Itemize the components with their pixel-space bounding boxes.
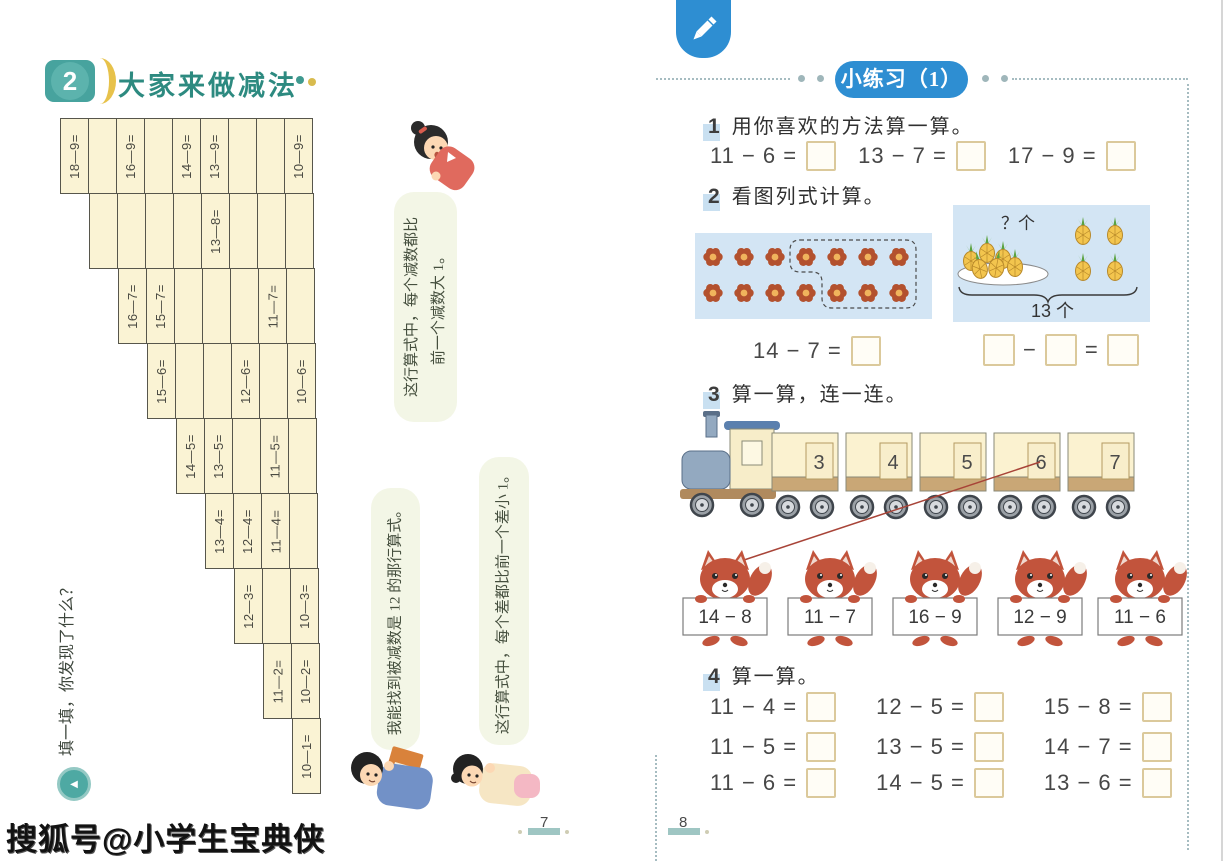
train-car-5: 7 <box>1068 433 1134 518</box>
grid-cell-label: 12—6= <box>238 359 253 404</box>
grid-row-minus4: 13—4= 12—4= 11—4= <box>205 493 318 569</box>
answer-box <box>1142 692 1172 722</box>
expression: 11 − 6 = <box>710 770 797 796</box>
flower-picture <box>695 233 932 319</box>
lesson-number-badge: 2 <box>45 60 95 102</box>
expression: 14 − 7 = <box>753 338 842 364</box>
grid-cell-label: 11—2= <box>270 659 285 703</box>
character-boy-bottom <box>343 746 453 818</box>
grid-cell-label: 13—4= <box>212 509 227 554</box>
grid-cell: 11—7= <box>258 268 287 344</box>
grid-cell <box>117 193 146 269</box>
grid-cell <box>173 193 202 269</box>
problem-1-row: 11 − 6 = 13 − 7 = 17 − 9 = <box>710 141 1136 171</box>
expression: 14 − 7 = <box>1044 734 1133 760</box>
grid-cell-label: 11—4= <box>268 509 283 553</box>
grid-cell <box>175 343 204 419</box>
expression-item: 13 − 6 = <box>1044 768 1172 798</box>
expression: 13 − 6 = <box>1044 770 1133 796</box>
grid-row-minus3: 12—3= 10—3= <box>234 568 319 644</box>
expression-item: 11 − 4 = <box>710 692 836 722</box>
grid-cell-label: 10—2= <box>298 659 313 704</box>
grid-cell <box>289 493 318 569</box>
train-car-number: 5 <box>961 452 972 474</box>
expression: 17 − 9 = <box>1008 143 1097 169</box>
accent-dot <box>308 78 316 86</box>
train-illustration: 3 4 5 6 7 <box>680 403 1150 521</box>
grid-cell: 13—5= <box>204 418 233 494</box>
grid-cell <box>145 193 174 269</box>
right-frame-dotted-line <box>1187 84 1189 850</box>
grid-cell <box>259 343 288 419</box>
footer-dot <box>705 830 709 834</box>
grid-cell: 18—9= <box>60 118 89 194</box>
grid-row-minus7: 16—7= 15—7= 11—7= <box>118 268 315 344</box>
side-prompt: 填一填，你发现了什么？ <box>53 562 77 774</box>
grid-cell: 14—5= <box>176 418 205 494</box>
header-dot <box>798 75 805 82</box>
grid-cell <box>229 193 258 269</box>
grid-cell: 16—9= <box>116 118 145 194</box>
grid-cell-label: 14—9= <box>179 134 194 179</box>
speech-bubble-boy-text: 我能找到被减数是 12 的那行算式。 <box>382 493 409 745</box>
squirrel-card-4: 12 − 9 <box>990 548 1090 648</box>
grid-cell: 12—6= <box>231 343 260 419</box>
lesson-badge-crescent <box>93 58 116 104</box>
bubble-line: 这行算式中，每个减数都比 <box>399 198 426 416</box>
bubble-line: 前一个减数大 1。 <box>426 198 453 416</box>
answer-box <box>974 732 1004 762</box>
answer-box <box>806 141 836 171</box>
card-expression: 14 − 8 <box>698 607 751 628</box>
speech-bubble-top: 这行算式中，每个减数都比 前一个减数大 1。 <box>394 192 457 422</box>
gutter-dotted-line <box>655 755 657 861</box>
grid-cell <box>228 118 257 194</box>
grid-cell-label: 15—6= <box>154 359 169 404</box>
grid-cell <box>262 568 291 644</box>
grid-cell: 10—6= <box>287 343 316 419</box>
grid-cell <box>286 268 315 344</box>
grid-cell: 12—3= <box>234 568 263 644</box>
accent-dot <box>296 76 304 84</box>
textbook-spread: 2 大家来做减法 18—9= 16—9= 14—9= 13—9= 10—9= 1… <box>0 0 1225 861</box>
header-dot <box>817 75 824 82</box>
answer-box <box>1045 334 1077 366</box>
answer-box <box>974 692 1004 722</box>
grid-cell-label: 10—9= <box>291 134 306 179</box>
expression: 13 − 5 = <box>876 734 965 760</box>
grid-cell: 11—2= <box>263 643 292 719</box>
grid-row-minus5: 14—5= 13—5= 11—5= <box>176 418 317 494</box>
grid-cell: 13—8= <box>201 193 230 269</box>
answer-box <box>956 141 986 171</box>
equals-sign: = <box>1085 337 1099 363</box>
minus-sign: − <box>1023 337 1037 363</box>
expression: 12 − 5 = <box>876 694 965 720</box>
flower-equation-row: 14 − 7 = <box>753 336 881 366</box>
grid-cell <box>232 418 261 494</box>
grid-cell-label: 11—5= <box>267 434 282 478</box>
grid-cell: 10—9= <box>284 118 313 194</box>
pineapple-picture: ？个 13 个 <box>953 205 1150 322</box>
speech-bubble-girl-bottom: 这行算式中，每个差都比前一个差小 1。 <box>479 457 529 745</box>
train-car-4: 6 <box>994 433 1060 518</box>
lesson-number: 2 <box>51 62 89 100</box>
grid-cell: 12—4= <box>233 493 262 569</box>
footer-dot <box>565 830 569 834</box>
grid-row-minus8: 13—8= <box>89 193 314 269</box>
problem-4-row-1: 11 − 4 = 12 − 5 = 15 − 8 = <box>710 692 1172 722</box>
grid-cell-label: 12—3= <box>241 584 256 629</box>
page-number-left: 7 <box>540 814 548 831</box>
grid-cell-label: 13—8= <box>208 209 223 254</box>
train-car-1: 3 <box>772 433 838 518</box>
speech-bubble-girl-bottom-text: 这行算式中，每个差都比前一个差小 1。 <box>491 462 518 740</box>
squirrel-card-1: 14 − 8 <box>675 548 775 648</box>
problem-4-header: 4 算一算。 <box>708 660 820 689</box>
footer-dot <box>518 830 522 834</box>
answer-box <box>1106 141 1136 171</box>
grid-row-minus2: 11—2= 10—2= <box>263 643 320 719</box>
grid-cell <box>174 268 203 344</box>
card-expression: 11 − 6 <box>1114 607 1166 628</box>
expression-item: 17 − 9 = <box>1008 141 1136 171</box>
character-girl-top <box>406 116 488 204</box>
expression-item: 11 − 6 = <box>710 141 836 171</box>
grid-cell-label: 14—5= <box>183 434 198 479</box>
expression-item: 14 − 7 = <box>1044 732 1172 762</box>
header-dot <box>982 75 989 82</box>
expression: 11 − 4 = <box>710 694 797 720</box>
train-car-3: 5 <box>920 433 986 518</box>
expression: 13 − 7 = <box>858 143 947 169</box>
grid-cell-label: 12—4= <box>240 509 255 554</box>
pencil-icon <box>687 12 721 46</box>
speech-bubble-top-text: 这行算式中，每个减数都比 前一个减数大 1。 <box>399 198 453 416</box>
grid-row-minus1: 10—1= <box>292 718 321 794</box>
grid-cell-label: 10—6= <box>294 359 309 404</box>
grid-cell <box>257 193 286 269</box>
answer-box <box>983 334 1015 366</box>
grid-cell <box>288 418 317 494</box>
squirrel-card-2: 11 − 7 <box>780 548 880 648</box>
expression-item: 12 − 5 = <box>876 692 1004 722</box>
answer-box <box>806 768 836 798</box>
problem-4-row-3: 11 − 6 = 14 − 5 = 13 − 6 = <box>710 768 1172 798</box>
card-expression: 16 − 9 <box>908 607 961 628</box>
page-edge <box>1221 0 1223 861</box>
answer-box <box>974 768 1004 798</box>
answer-box <box>851 336 881 366</box>
answer-box <box>806 692 836 722</box>
lesson-title: 大家来做减法 <box>118 64 298 103</box>
header-dotted-line <box>656 78 790 80</box>
grid-cell-label: 16—9= <box>123 134 138 179</box>
grid-cell <box>202 268 231 344</box>
squirrel-card-3: 16 − 9 <box>885 548 985 648</box>
question-count-label: ？个 <box>1001 214 1035 233</box>
answer-box <box>1142 768 1172 798</box>
bubble-line: 我能找到被减数是 12 的那行算式。 <box>382 493 409 745</box>
side-prompt-wrap: 填一填，你发现了什么？ <box>46 560 84 775</box>
total-count-label: 13 个 <box>1031 301 1074 321</box>
grid-cell-label: 18—9= <box>67 134 82 179</box>
speech-bubble-boy: 我能找到被减数是 12 的那行算式。 <box>371 488 420 750</box>
problem-1-header: 1 用你喜欢的方法算一算。 <box>708 110 974 139</box>
problem-title: 算一算。 <box>732 660 820 689</box>
grid-row-minus9: 18—9= 16—9= 14—9= 13—9= 10—9= <box>60 118 313 194</box>
train-car-2: 4 <box>846 433 912 518</box>
problem-number: 2 <box>708 185 720 209</box>
answer-box <box>806 732 836 762</box>
expression: 11 − 6 = <box>710 143 797 169</box>
expression-item: 14 − 5 = <box>876 768 1004 798</box>
problem-2-header: 2 看图列式计算。 <box>708 180 886 209</box>
grid-cell <box>203 343 232 419</box>
expression-item: 11 − 5 = <box>710 732 836 762</box>
grid-cell <box>89 193 118 269</box>
bubble-line: 这行算式中，每个差都比前一个差小 1。 <box>491 462 518 740</box>
problem-number: 1 <box>708 115 720 139</box>
expression: 11 − 5 = <box>710 734 797 760</box>
problem-4-row-2: 11 − 5 = 13 − 5 = 14 − 7 = <box>710 732 1172 762</box>
activity-arrow-icon: ◀ <box>57 767 91 801</box>
page-number-right: 8 <box>679 814 687 831</box>
header-dotted-line <box>1012 78 1188 80</box>
expression-item: 11 − 6 = <box>710 768 836 798</box>
grid-cell <box>285 193 314 269</box>
grid-cell-label: 10—3= <box>297 584 312 629</box>
grid-cell: 11—4= <box>261 493 290 569</box>
grid-cell-label: 10—1= <box>299 734 314 779</box>
card-expression: 11 − 7 <box>804 607 856 628</box>
problem-number: 4 <box>708 665 720 689</box>
train-car-number: 7 <box>1109 452 1120 474</box>
grid-cell-label: 15—7= <box>153 284 168 329</box>
grid-cell: 15—6= <box>147 343 176 419</box>
grid-cell: 16—7= <box>118 268 147 344</box>
squirrel-card-5: 11 − 6 <box>1090 548 1190 648</box>
expression-item: 13 − 7 = <box>858 141 986 171</box>
problem-title: 看图列式计算。 <box>732 180 886 209</box>
train-car-number: 3 <box>813 452 824 474</box>
expression-item: 13 − 5 = <box>876 732 1004 762</box>
grid-cell: 10—2= <box>291 643 320 719</box>
pencil-badge <box>676 0 731 58</box>
problem-title: 用你喜欢的方法算一算。 <box>732 110 974 139</box>
expression: 14 − 5 = <box>876 770 965 796</box>
expression-item: 15 − 8 = <box>1044 692 1172 722</box>
grid-cell-label: 16—7= <box>125 284 140 329</box>
grid-cell <box>88 118 117 194</box>
card-expression: 12 − 9 <box>1013 607 1066 628</box>
grid-cell: 11—5= <box>260 418 289 494</box>
grid-cell: 13—9= <box>200 118 229 194</box>
grid-cell: 10—1= <box>292 718 321 794</box>
grid-cell <box>256 118 285 194</box>
train-car-number: 4 <box>887 452 898 474</box>
answer-box <box>1107 334 1139 366</box>
grid-cell: 10—3= <box>290 568 319 644</box>
character-girl-bottom <box>446 748 548 816</box>
grid-cell-label: 13—5= <box>211 434 226 479</box>
practice-title-pill: 小练习（1） <box>835 61 968 98</box>
train-car-number: 6 <box>1035 452 1046 474</box>
answer-box <box>1142 732 1172 762</box>
grid-row-minus6: 15—6= 12—6= 10—6= <box>147 343 316 419</box>
grid-cell: 14—9= <box>172 118 201 194</box>
grid-cell <box>230 268 259 344</box>
grid-cell: 15—7= <box>146 268 175 344</box>
expression: 15 − 8 = <box>1044 694 1133 720</box>
grid-cell <box>144 118 173 194</box>
grid-cell-label: 11—7= <box>265 284 280 328</box>
watermark: 搜狐号@小学生宝典侠 <box>6 814 325 859</box>
grid-cell-label: 13—9= <box>207 134 222 179</box>
header-dot <box>1001 75 1008 82</box>
pineapple-equation-row: − = <box>983 334 1139 366</box>
grid-cell: 13—4= <box>205 493 234 569</box>
